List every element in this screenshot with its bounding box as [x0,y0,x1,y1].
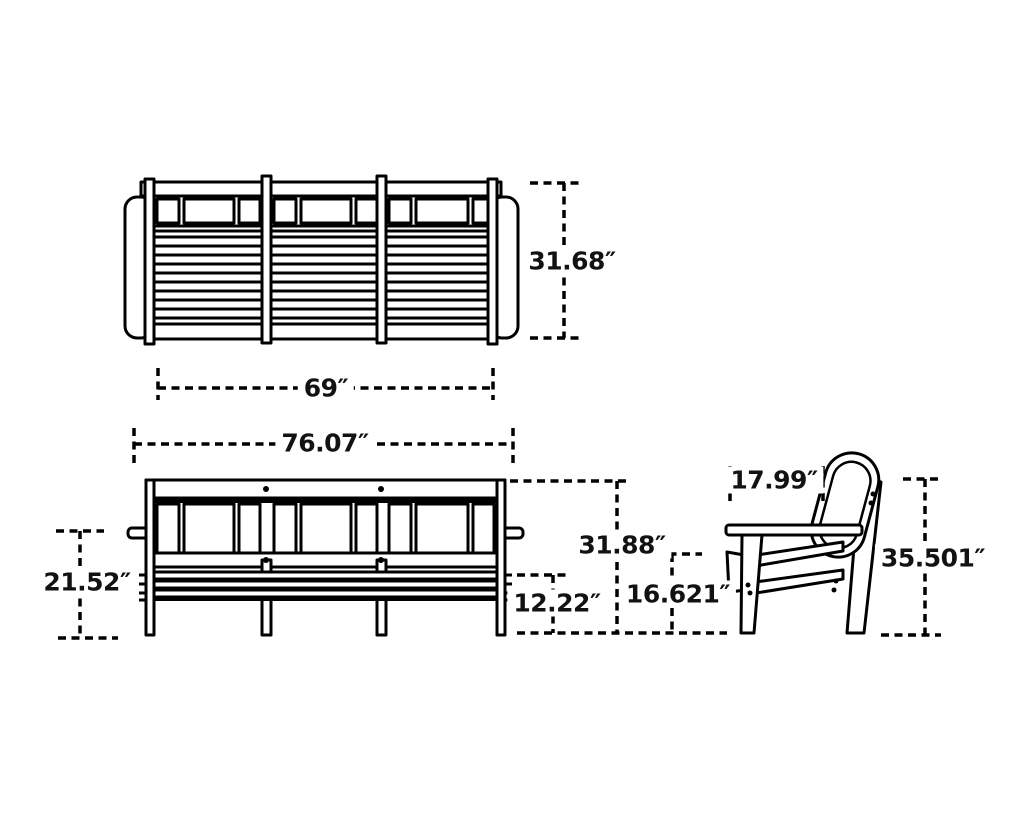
dim-sofa-back-rail-height-label: 16.621″ [620,581,736,608]
sofa-front-back-panels [157,504,494,553]
sofa-front-view [128,480,523,635]
furniture-dimension-diagram: 31.68″ 69″ 76.07″ 21.52″ 31.88″ 12.22″ 1… [0,0,1024,819]
diagram-line-art [0,0,1024,819]
sofa-back-slats [148,237,494,339]
sofa-front-seat-slats [139,572,512,600]
dim-sofa-arm-height-label: 21.52″ [37,569,136,596]
dim-sofa-overall-height-label: 31.88″ [572,532,671,559]
sofa-back-view [125,176,518,344]
sofa-back-spindle-row [148,196,494,231]
chair-front-leg [741,535,762,633]
dim-chair-overall-height-label: 35.501″ [875,545,991,572]
dim-sofa-back-height-label: 31.68″ [522,248,621,275]
dim-sofa-seat-height-label: 12.22″ [507,590,606,617]
sofa-back-top-rail [141,182,501,196]
sofa-front-top-rail [146,480,505,501]
chair-seat-rail-lower [748,570,843,594]
dim-sofa-back-width-label: 69″ [298,375,354,402]
chair-arm [726,525,862,535]
dim-sofa-overall-width-label: 76.07″ [275,430,374,457]
sofa-front-seat-rail [146,553,505,567]
dim-chair-arm-depth-label: 17.99″ [724,467,823,494]
